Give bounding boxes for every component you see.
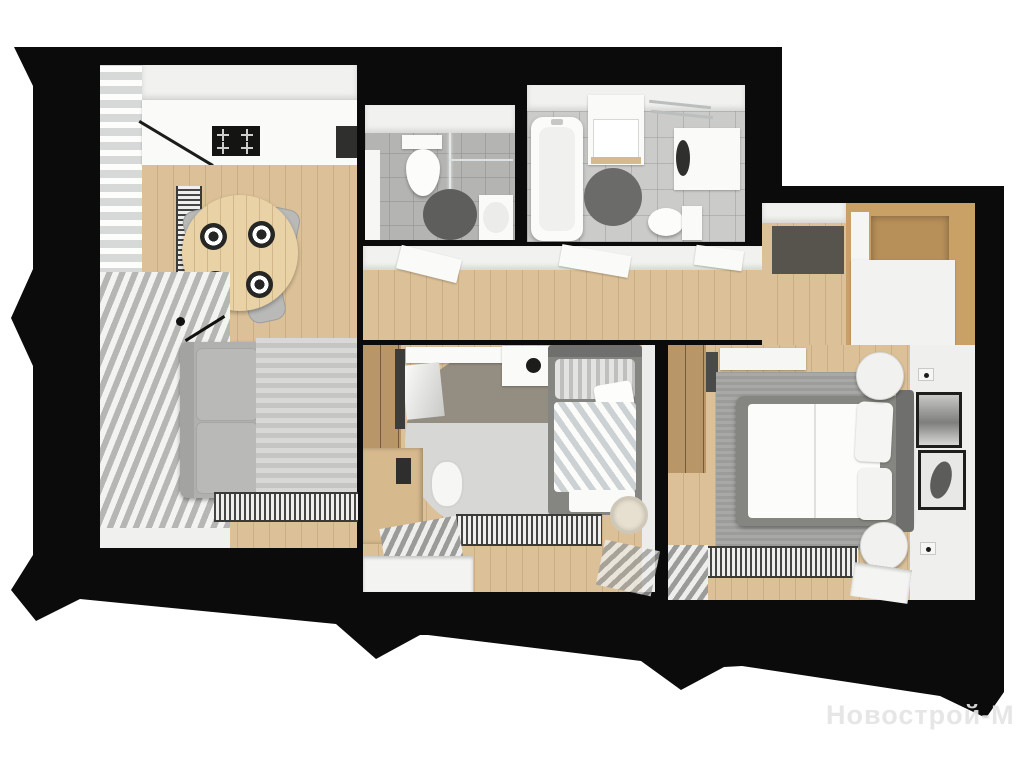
duvet-fold-line	[814, 404, 816, 518]
single-bed	[548, 345, 642, 515]
wall-art	[918, 450, 966, 510]
washing-machine	[674, 128, 740, 190]
bathroom-bathtub	[527, 85, 745, 242]
toilet-cistern	[402, 135, 442, 149]
table-lamp	[526, 358, 541, 373]
bedroom1-window	[363, 556, 473, 592]
bedroom-master	[668, 345, 975, 600]
place-setting-plate	[246, 271, 273, 298]
double-bed	[736, 396, 912, 526]
vanity-wood-edge	[591, 157, 641, 164]
sofa-cushion	[196, 348, 258, 421]
bed-headboard	[548, 345, 642, 357]
kitchen-ceiling	[142, 65, 357, 100]
open-door-leaf-angled	[401, 362, 444, 420]
toilet2-cistern	[682, 206, 702, 240]
open-door-leaf	[406, 347, 516, 363]
wall-shelf	[720, 348, 806, 370]
bedroom2-radiator	[700, 546, 858, 578]
bedroom2-window	[850, 562, 912, 604]
burner-icon	[217, 129, 229, 141]
living-room	[100, 65, 357, 548]
bedroom-single	[363, 345, 655, 592]
entry-wardrobe	[846, 203, 975, 345]
burner-icon	[217, 142, 229, 154]
bed-duvet	[554, 402, 636, 492]
shower-shelf	[449, 159, 513, 161]
floor-lamp-head	[176, 317, 185, 326]
bed-pillow	[854, 401, 893, 463]
burner-icon	[241, 142, 253, 154]
balcony-sill	[100, 528, 230, 548]
wall-sconce	[920, 542, 936, 555]
wall-art	[916, 392, 962, 448]
burner-icon	[241, 129, 253, 141]
vanity-sink	[593, 119, 639, 159]
apartment-floorplan-render: Новострой-М	[0, 0, 1017, 768]
doormat	[772, 226, 844, 274]
bedroom2-wardrobe	[668, 345, 706, 473]
watermark: Новострой-М	[826, 700, 1015, 731]
entry-ceiling	[762, 203, 846, 223]
desk-monitor	[396, 458, 411, 484]
bathroom-shower	[365, 105, 515, 240]
bedroom2-striped-rug	[668, 545, 708, 600]
corridor	[363, 246, 780, 340]
towel-rack	[651, 110, 713, 119]
toilet2-bowl	[648, 208, 684, 236]
bathtub	[531, 117, 583, 241]
sink-basin	[483, 202, 509, 233]
sofa-cushion	[196, 422, 258, 494]
bathroom1-round-rug	[423, 189, 477, 240]
washing-machine-door	[676, 140, 690, 176]
wall-sconce	[918, 368, 934, 381]
entry-hall	[762, 203, 975, 345]
bedroom1-radiator	[456, 514, 602, 546]
wardrobe-mirror-strip	[395, 349, 405, 429]
vanity-cabinet	[588, 95, 644, 165]
bedside-stool	[860, 522, 908, 570]
place-setting-plate	[248, 221, 275, 248]
cooktop	[212, 126, 260, 156]
toilet-bowl	[406, 149, 440, 196]
sofa-backrest	[180, 342, 194, 498]
bathroom1-sink	[479, 195, 513, 240]
bed-headboard	[896, 390, 914, 532]
bed-pillow	[858, 468, 892, 520]
living-radiator	[214, 492, 358, 522]
bathroom2-round-rug	[584, 168, 642, 226]
bathroom1-ceiling	[365, 105, 515, 133]
bathroom1-door-strip	[365, 150, 380, 240]
built-in-oven	[336, 126, 357, 158]
wardrobe-white-panel	[851, 260, 955, 345]
bedside-stool	[856, 352, 904, 400]
laundry-basket	[610, 496, 648, 534]
place-setting-plate	[200, 223, 227, 250]
wall-art-motif	[926, 459, 955, 501]
sofa	[180, 342, 262, 498]
living-area-rug	[256, 338, 357, 502]
bathtub-faucet-icon	[551, 119, 563, 125]
bathtub-basin	[539, 127, 575, 231]
desk-chair	[430, 460, 464, 508]
